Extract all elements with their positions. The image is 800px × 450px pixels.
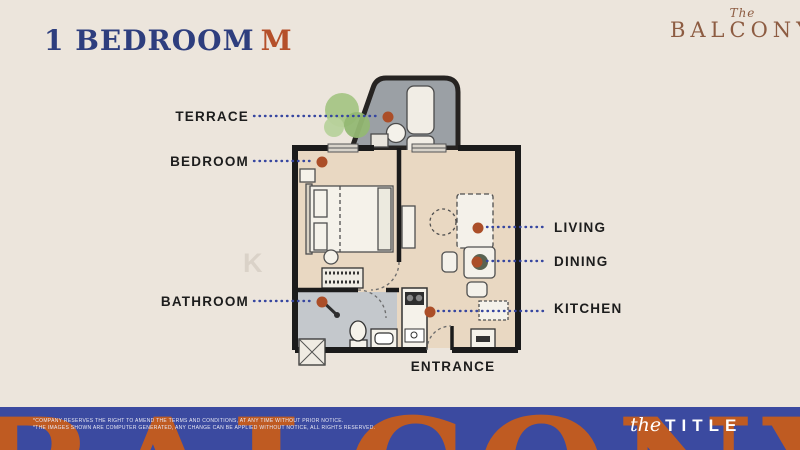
toilet xyxy=(350,321,367,348)
nightstand xyxy=(300,169,315,182)
label-bathroom: BATHROOM xyxy=(119,294,249,309)
sofa xyxy=(457,194,493,248)
label-entrance: ENTRANCE xyxy=(390,359,516,374)
label-terrace: TERRACE xyxy=(119,109,249,124)
kitchen-counter xyxy=(402,288,427,348)
disclaimer: *COMPANY RESERVES THE RIGHT TO AMEND THE… xyxy=(33,418,375,432)
label-living: LIVING xyxy=(554,220,606,235)
wardrobe xyxy=(322,268,363,288)
terrace-side-table xyxy=(387,124,406,143)
disclaimer-line-2: *THE IMAGES SHOWN ARE COMPUTER GENERATED… xyxy=(33,425,375,432)
developer-logo: theTITLE xyxy=(630,414,760,436)
laundry-ledge xyxy=(299,339,325,365)
tv-console xyxy=(402,206,415,248)
disclaimer-line-1: *COMPANY RESERVES THE RIGHT TO AMEND THE… xyxy=(33,418,375,425)
bed xyxy=(306,184,393,254)
label-bedroom: BEDROOM xyxy=(119,154,249,169)
bedroom-stool xyxy=(324,250,338,264)
footer-bar: BALCONY *COMPANY RESERVES THE RIGHT TO A… xyxy=(0,407,800,450)
developer-logo-name: TITLE xyxy=(665,416,742,435)
slide: 1 BEDROOMM The BALCONY K H N xyxy=(0,0,800,450)
label-kitchen: KITCHEN xyxy=(554,301,622,316)
vanity-sink xyxy=(371,329,397,348)
fridge xyxy=(471,329,495,348)
developer-logo-the: the xyxy=(630,414,661,436)
floorplan-drawing xyxy=(0,0,800,450)
label-dining: DINING xyxy=(554,254,608,269)
